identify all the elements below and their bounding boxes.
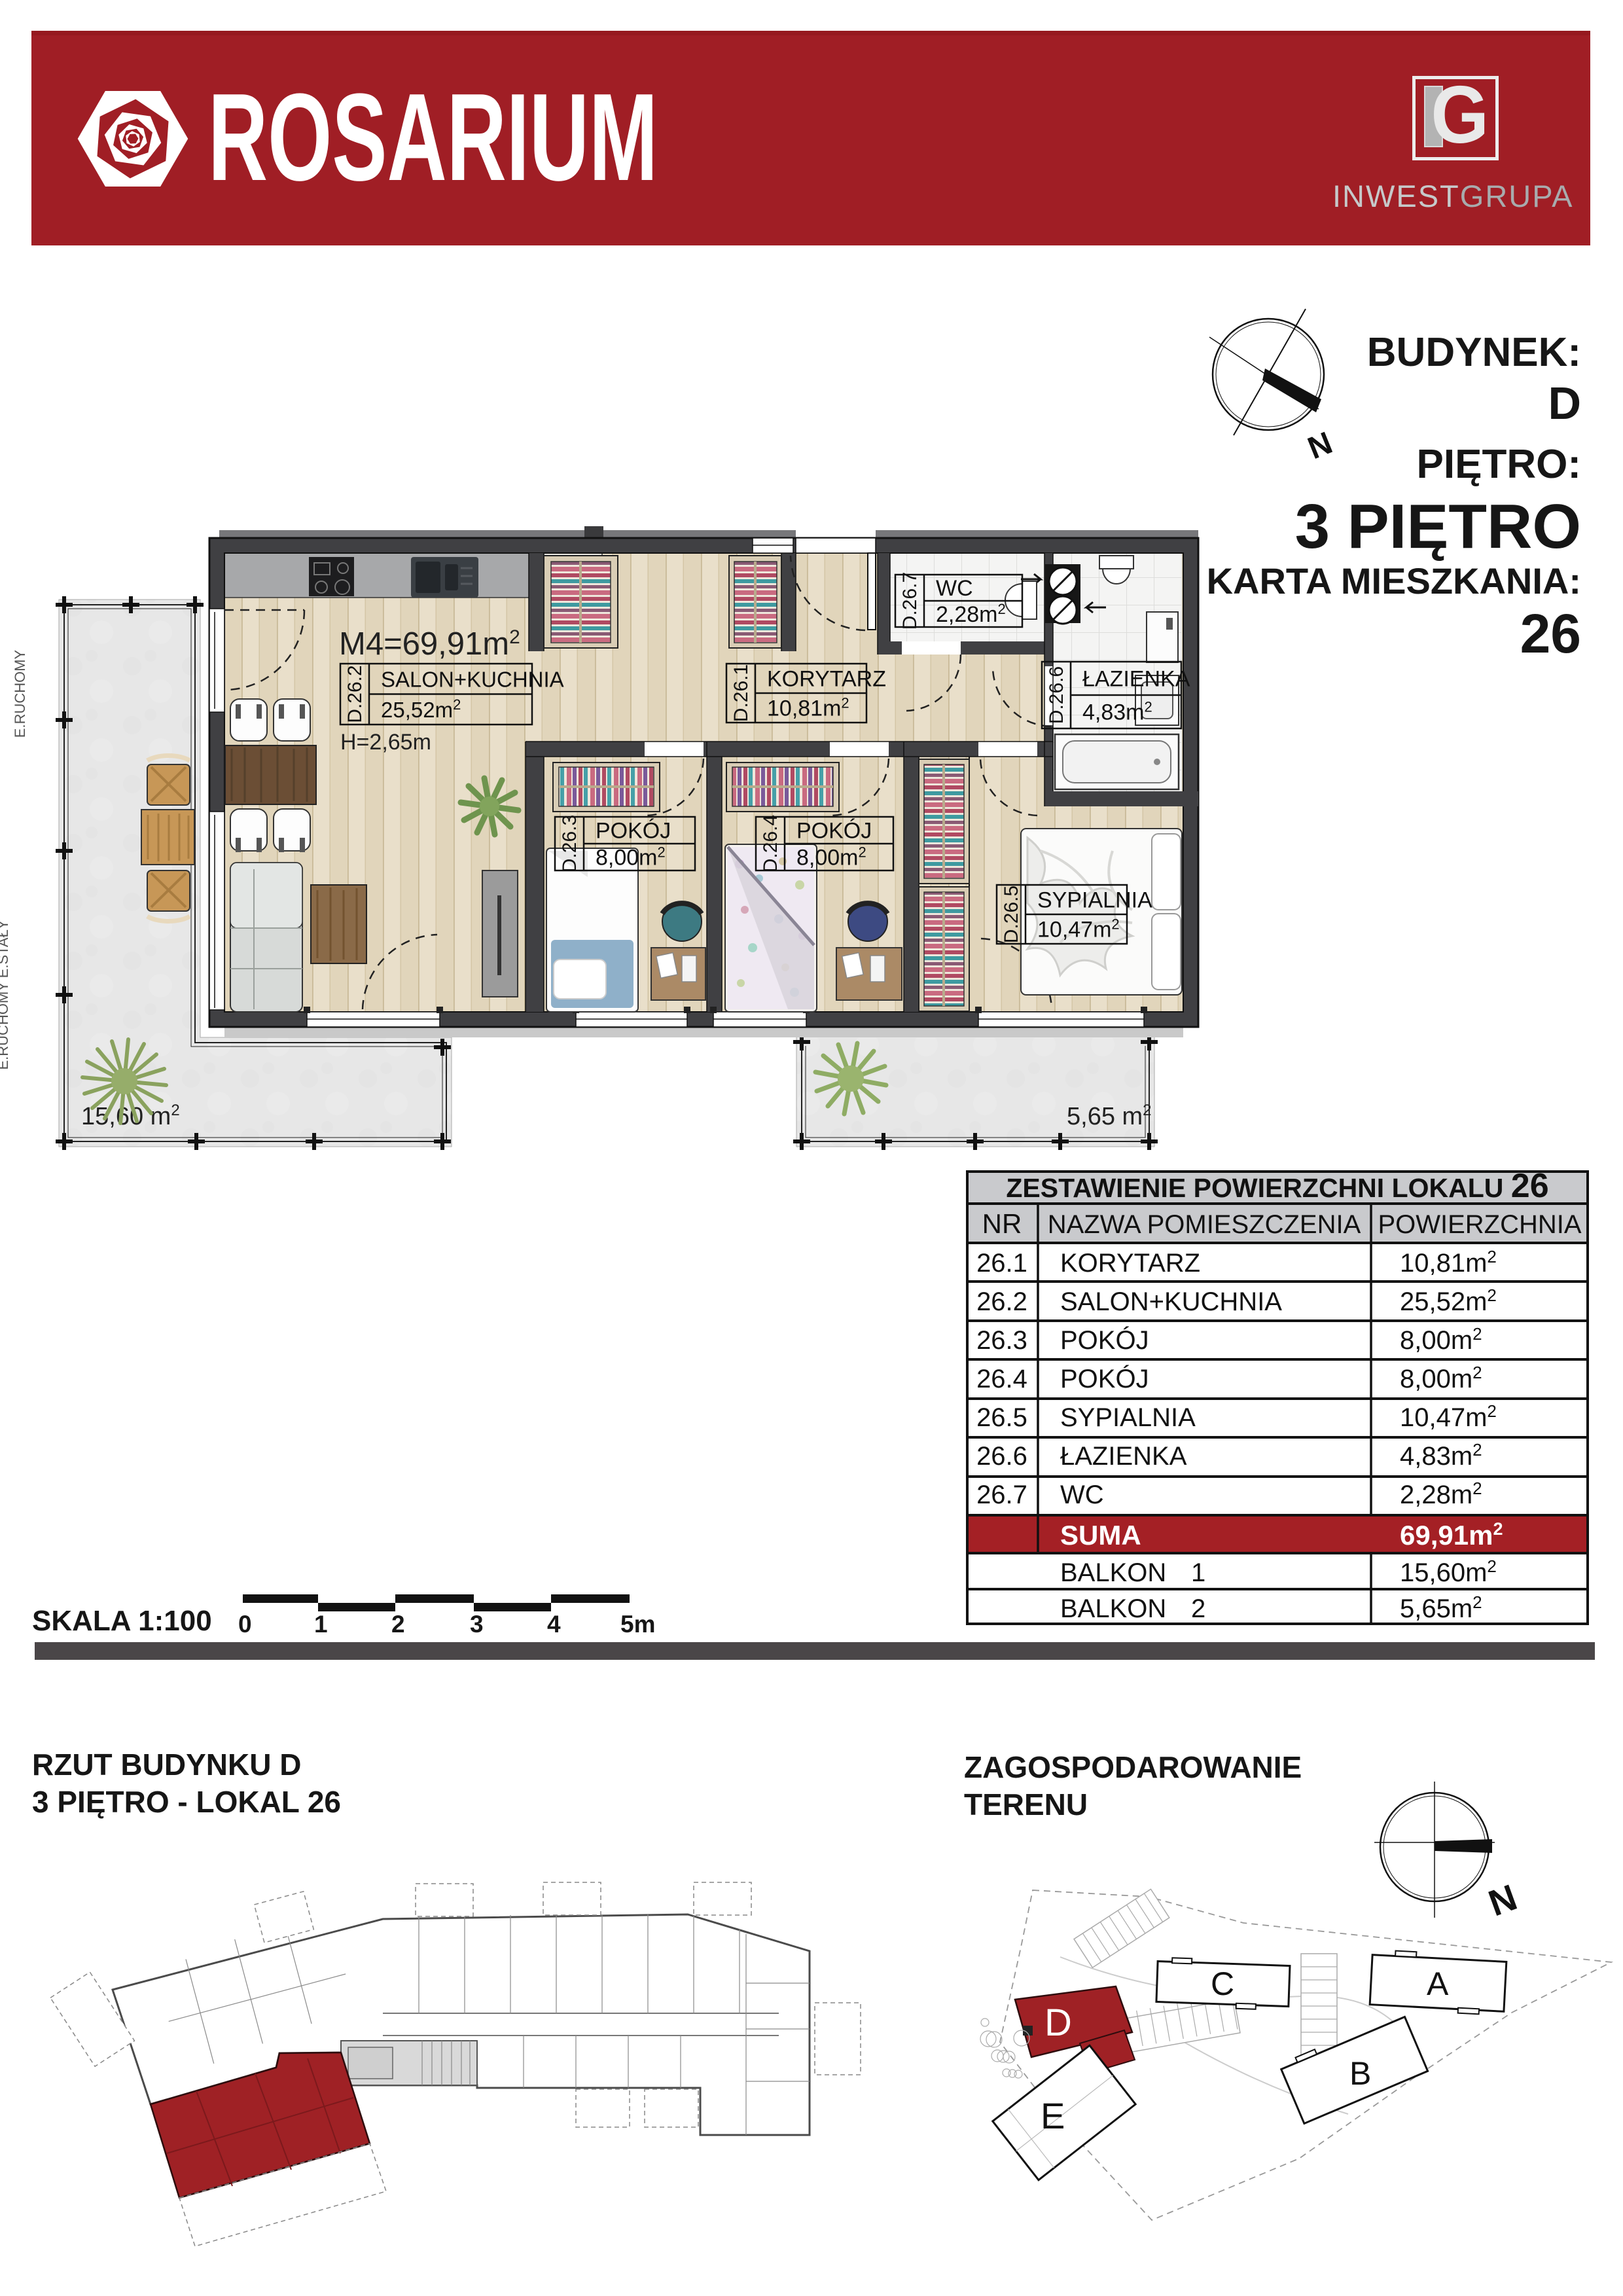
svg-text:1: 1 (314, 1611, 328, 1636)
svg-text:B: B (1349, 2055, 1371, 2092)
svg-text:25,52m2: 25,52m2 (1400, 1285, 1497, 1316)
svg-text:5,65 m2: 5,65 m2 (1067, 1102, 1152, 1130)
svg-text:3: 3 (470, 1611, 484, 1636)
svg-text:26.7: 26.7 (976, 1480, 1027, 1509)
svg-text:WC: WC (1060, 1480, 1104, 1509)
svg-text:M4=69,91m2: M4=69,91m2 (339, 626, 520, 662)
svg-text:SYPIALNIA: SYPIALNIA (1060, 1403, 1196, 1432)
svg-text:POKÓJ: POKÓJ (596, 819, 671, 844)
svg-text:26.1: 26.1 (976, 1249, 1027, 1278)
svg-text:4,83m2: 4,83m2 (1082, 699, 1152, 725)
svg-text:D.26.6: D.26.6 (1046, 666, 1067, 724)
svg-text:SALON+KUCHNIA: SALON+KUCHNIA (1060, 1287, 1282, 1316)
svg-text:E.RUCHOMY E.STAŁY: E.RUCHOMY E.STAŁY (0, 920, 11, 1069)
svg-text:A: A (1427, 1965, 1449, 2002)
svg-text:4,83m2: 4,83m2 (1400, 1440, 1482, 1471)
svg-text:5m: 5m (620, 1611, 655, 1636)
svg-text:8,00m2: 8,00m2 (796, 844, 866, 870)
svg-text:ŁAZIENKA: ŁAZIENKA (1082, 667, 1190, 692)
svg-text:POKÓJ: POKÓJ (796, 819, 872, 844)
svg-text:D: D (1044, 2001, 1072, 2044)
svg-text:10,47m2: 10,47m2 (1037, 916, 1120, 942)
svg-text:BALKON: BALKON (1060, 1558, 1166, 1587)
svg-text:D.26.7: D.26.7 (899, 572, 921, 630)
svg-text:69,91m2: 69,91m2 (1400, 1519, 1503, 1551)
svg-text:D.26.4: D.26.4 (760, 815, 781, 872)
svg-text:D.26.1: D.26.1 (730, 664, 752, 722)
svg-text:D.26.2: D.26.2 (344, 665, 366, 723)
svg-text:26.6: 26.6 (976, 1442, 1027, 1471)
svg-text:NAZWA POMIESZCZENIA: NAZWA POMIESZCZENIA (1048, 1210, 1361, 1239)
svg-text:8,00m2: 8,00m2 (1400, 1324, 1482, 1355)
svg-text:POKÓJ: POKÓJ (1060, 1325, 1149, 1355)
svg-text:SUMA: SUMA (1060, 1520, 1141, 1551)
svg-text:2: 2 (1191, 1594, 1205, 1623)
svg-text:G: G (1433, 82, 1489, 151)
svg-text:D.26.5: D.26.5 (1001, 886, 1022, 943)
svg-text:ZESTAWIENIE POWIERZCHNI LOKALU: ZESTAWIENIE POWIERZCHNI LOKALU 26 (1006, 1170, 1548, 1205)
svg-text:POWIERZCHNIA: POWIERZCHNIA (1378, 1210, 1581, 1239)
svg-text:ŁAZIENKA: ŁAZIENKA (1060, 1442, 1187, 1471)
svg-text:15,60m2: 15,60m2 (1400, 1556, 1497, 1587)
svg-text:KORYTARZ: KORYTARZ (767, 667, 886, 692)
svg-text:25,52m2: 25,52m2 (381, 696, 461, 722)
svg-text:1: 1 (1191, 1558, 1205, 1587)
svg-text:H=2,65m: H=2,65m (340, 730, 431, 755)
svg-text:KORYTARZ: KORYTARZ (1060, 1249, 1200, 1278)
svg-text:5,65m2: 5,65m2 (1400, 1592, 1482, 1623)
svg-text:ROSARIUM: ROSARIUM (208, 84, 658, 188)
svg-text:26.5: 26.5 (976, 1403, 1027, 1432)
svg-text:C: C (1211, 1965, 1234, 2002)
svg-text:E: E (1041, 2095, 1065, 2136)
svg-text:E.RUCHOMY: E.RUCHOMY (12, 649, 28, 738)
svg-text:10,81m2: 10,81m2 (767, 695, 849, 721)
svg-text:BALKON: BALKON (1060, 1594, 1166, 1623)
svg-text:8,00m2: 8,00m2 (596, 844, 666, 870)
svg-text:POKÓJ: POKÓJ (1060, 1364, 1149, 1393)
svg-text:SALON+KUCHNIA: SALON+KUCHNIA (381, 667, 564, 691)
svg-text:8,00m2: 8,00m2 (1400, 1363, 1482, 1393)
svg-text:4: 4 (547, 1611, 561, 1636)
svg-text:26.2: 26.2 (976, 1287, 1027, 1316)
svg-text:D.26.3: D.26.3 (559, 815, 580, 872)
svg-text:10,81m2: 10,81m2 (1400, 1247, 1497, 1278)
svg-text:26.3: 26.3 (976, 1326, 1027, 1355)
svg-text:WC: WC (936, 576, 973, 601)
svg-text:26.4: 26.4 (976, 1365, 1027, 1393)
svg-text:10,47m2: 10,47m2 (1400, 1401, 1497, 1432)
svg-text:0: 0 (238, 1611, 252, 1636)
svg-text:SYPIALNIA: SYPIALNIA (1037, 888, 1152, 913)
svg-text:NR: NR (982, 1208, 1022, 1239)
svg-text:2: 2 (391, 1611, 405, 1636)
svg-text:2,28m2: 2,28m2 (936, 601, 1006, 627)
svg-text:2,28m2: 2,28m2 (1400, 1479, 1482, 1509)
